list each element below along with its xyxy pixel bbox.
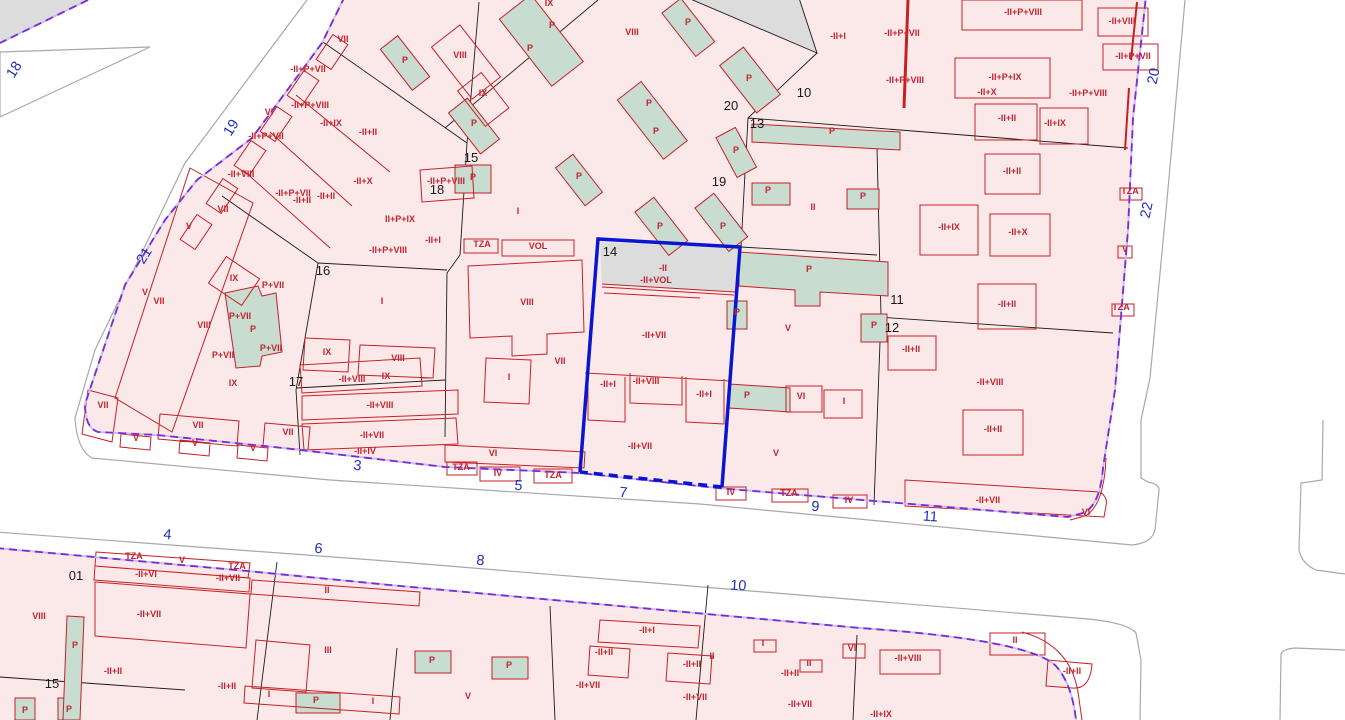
street-number-label: 10: [730, 577, 747, 594]
height-label: P+VII: [260, 343, 282, 353]
parcel-number-label: 01: [69, 568, 83, 583]
height-label: II: [1012, 635, 1017, 645]
height-label: I: [268, 689, 271, 699]
height-label: VIII: [625, 27, 639, 37]
height-label: -II+IX: [938, 222, 960, 232]
height-label: -II+II: [1063, 666, 1081, 676]
height-label: -II+II: [595, 647, 613, 657]
height-label: -II+I: [600, 379, 616, 389]
height-label: IX: [545, 0, 554, 8]
height-label: -II+II: [781, 668, 799, 678]
height-label: IX: [230, 273, 239, 283]
parcel-number-label: 15: [45, 676, 59, 691]
height-label: I: [517, 206, 520, 216]
opposite-block-corner: [0, 47, 150, 117]
parcel-number-label: 13: [750, 116, 764, 131]
height-label: -II+IX: [1044, 118, 1066, 128]
height-label: VIII: [32, 611, 46, 621]
height-label: TZA: [228, 561, 246, 571]
height-label: -II+P+VII: [884, 28, 920, 38]
height-label: -II+P+VIII: [369, 245, 407, 255]
height-label: P: [653, 126, 659, 136]
height-label: -II+VI: [135, 569, 157, 579]
height-label: -II+VII: [360, 430, 384, 440]
parcel-number-label: 20: [724, 98, 738, 113]
height-label: V: [186, 221, 192, 231]
height-label: P: [470, 172, 476, 182]
height-label: IV: [845, 495, 854, 505]
height-label: P: [549, 20, 555, 30]
street-number-label: 4: [163, 527, 173, 544]
height-label: VIII: [197, 320, 211, 330]
height-label: V: [133, 433, 139, 443]
height-label: V: [785, 323, 791, 333]
height-label: I: [381, 296, 384, 306]
height-label: -II+VII: [683, 692, 707, 702]
height-label: P: [576, 171, 582, 181]
height-label: I: [762, 638, 765, 648]
height-label: P: [685, 17, 691, 27]
height-label: P: [829, 126, 835, 136]
height-label: V: [142, 287, 148, 297]
height-label: TZA: [1121, 186, 1139, 196]
height-label: VII: [97, 400, 108, 410]
height-label: V: [250, 443, 256, 453]
height-label: -II+X: [1008, 227, 1027, 237]
height-label: -II+X: [977, 87, 996, 97]
height-label: P: [527, 43, 533, 53]
height-label: -II+VII: [137, 609, 161, 619]
street-number-label: 22: [1138, 201, 1157, 220]
height-label: VOL: [529, 241, 548, 251]
height-label: TZA: [452, 462, 470, 472]
height-label: -II+II: [998, 299, 1016, 309]
height-label: -II+P+VIII: [291, 100, 329, 110]
height-label: VII: [192, 420, 203, 430]
street-number-label: 9: [811, 499, 820, 516]
height-label: P: [657, 221, 663, 231]
height-label: -II+P+IX: [988, 72, 1021, 82]
height-label: P: [66, 704, 72, 714]
height-label: -II+IX: [320, 118, 342, 128]
height-label: -II+P+VII: [248, 131, 284, 141]
height-label: IX: [323, 347, 332, 357]
height-label: P+VII: [229, 311, 251, 321]
height-label: TZA: [780, 488, 798, 498]
height-label: -II+I: [696, 389, 712, 399]
height-label: -II+II: [317, 191, 335, 201]
height-label: IX: [382, 371, 391, 381]
parcel-number-label: 19: [712, 174, 726, 189]
height-label: TZA: [125, 551, 143, 561]
height-label: -II+VII: [216, 573, 240, 583]
height-label: V: [1122, 244, 1128, 254]
height-label: P: [250, 324, 256, 334]
height-label: IV: [727, 487, 736, 497]
height-label: IX: [229, 378, 238, 388]
height-label: IV: [494, 468, 503, 478]
height-label: -II+IX: [870, 709, 892, 719]
height-label: -II+X: [353, 176, 372, 186]
height-label: P: [871, 320, 877, 330]
height-label: -II+I: [830, 31, 846, 41]
height-label: -II+II: [1003, 166, 1021, 176]
height-label: P: [72, 640, 78, 650]
height-label: V: [465, 691, 471, 701]
height-label: -II+II: [218, 681, 236, 691]
height-label: -II+II: [293, 195, 311, 205]
height-label: -II+VOL: [640, 275, 672, 285]
parcel-number-label: 18: [430, 182, 444, 197]
height-label: -II+II: [902, 344, 920, 354]
parcel-number-label: 11: [890, 292, 904, 307]
height-label: P: [313, 695, 319, 705]
height-label: II: [806, 658, 811, 668]
height-label: -II+VII: [976, 495, 1000, 505]
height-label: -II: [659, 263, 667, 273]
height-label: -II+P+VIII: [1069, 88, 1107, 98]
cadastral-map[interactable]: VII-II+P+VIIVI-II+P+VIII-II+IX-II+II-II+…: [0, 0, 1345, 720]
height-label: P: [733, 145, 739, 155]
height-label: -II+VII: [576, 680, 600, 690]
height-label: -II+II: [683, 659, 701, 669]
height-label: P+VII: [212, 350, 234, 360]
street-number-label: 18: [4, 59, 26, 81]
height-label: P: [744, 390, 750, 400]
street-number-label: 3: [353, 458, 363, 475]
height-label: P: [506, 660, 512, 670]
height-label: VI: [848, 643, 857, 653]
height-label: II: [324, 585, 329, 595]
parcel-number-label: 16: [316, 263, 330, 278]
height-label: VIII: [520, 297, 534, 307]
height-label: -II+VIII: [895, 653, 922, 663]
street-number-label: 7: [619, 485, 628, 502]
height-label: -II+VIII: [367, 400, 394, 410]
height-label: VI: [265, 107, 274, 117]
height-label: -II+I: [639, 625, 655, 635]
height-label: -II+II: [984, 424, 1002, 434]
height-label: -II+VIII: [228, 169, 255, 179]
street-number-label: 20: [1145, 67, 1164, 86]
parcel-number-label: 12: [885, 320, 899, 335]
street-number-label: 19: [221, 117, 243, 139]
height-label: V: [192, 438, 198, 448]
height-label: IX: [479, 88, 488, 98]
height-label: V: [773, 448, 779, 458]
cadastral-map-canvas[interactable]: VII-II+P+VIIVI-II+P+VIII-II+IX-II+II-II+…: [0, 0, 1345, 720]
height-label: P: [806, 264, 812, 274]
street-number-label: 11: [922, 509, 938, 526]
parcel-number-label: 14: [603, 244, 617, 259]
height-label: P: [22, 705, 28, 715]
street-number-label: 8: [476, 553, 485, 570]
height-label: -II+P+VII: [1115, 51, 1151, 61]
height-label: -II+IV: [354, 446, 376, 456]
neighbor-block-corner: [0, 0, 88, 43]
height-label: -II+VIII: [633, 376, 660, 386]
street-number-label: 6: [314, 541, 324, 558]
height-label: TZA: [1112, 302, 1130, 312]
height-label: VII: [337, 34, 348, 44]
height-label: -II+P+VIII: [886, 75, 924, 85]
height-label: II: [810, 202, 815, 212]
height-label: P: [402, 55, 408, 65]
height-label: -II+II: [998, 113, 1016, 123]
height-label: P: [860, 191, 866, 201]
height-label: P: [765, 185, 771, 195]
city-blocks[interactable]: [0, 0, 1146, 720]
height-label: -II+VIII: [977, 377, 1004, 387]
height-label: -II+VIII: [339, 374, 366, 384]
height-label: P: [734, 307, 740, 317]
height-label: P+VII: [262, 280, 284, 290]
height-label: VII: [554, 356, 565, 366]
height-label: I: [372, 696, 375, 706]
height-label: III: [324, 645, 332, 655]
height-label: TZA: [544, 470, 562, 480]
height-label: VIII: [391, 353, 405, 363]
height-label: -II+VIII: [1109, 16, 1136, 26]
height-label: II+P+IX: [385, 214, 415, 224]
height-label: II: [709, 651, 714, 661]
parcel-number-label: 17: [289, 374, 303, 389]
height-label: VIII: [453, 50, 467, 60]
height-label: VII: [282, 427, 293, 437]
street-number-label: 5: [514, 478, 524, 495]
height-label: -II+II: [359, 127, 377, 137]
height-label: I: [843, 396, 846, 406]
height-label: P: [720, 221, 726, 231]
height-label: VII: [217, 204, 228, 214]
height-label: P: [429, 655, 435, 665]
height-label: VI: [1082, 507, 1091, 517]
height-label: P: [471, 118, 477, 128]
height-label: -II+VII: [788, 699, 812, 709]
height-label: P: [746, 73, 752, 83]
height-label: VI: [489, 448, 498, 458]
height-label: -II+VII: [628, 441, 652, 451]
height-label: -II+P+VIII: [1004, 7, 1042, 17]
height-label: P: [646, 98, 652, 108]
height-label: -II+I: [425, 235, 441, 245]
height-label: TZA: [473, 239, 491, 249]
height-label: -II+P+VII: [290, 64, 326, 74]
parcel-number-label: 10: [797, 85, 811, 100]
height-label: -II+II: [104, 666, 122, 676]
height-label: VI: [797, 391, 806, 401]
height-label: VII: [153, 296, 164, 306]
parcel-number-label: 15: [464, 150, 478, 165]
height-label: -II+VII: [642, 330, 666, 340]
height-label: V: [179, 555, 185, 565]
height-label: I: [508, 372, 511, 382]
